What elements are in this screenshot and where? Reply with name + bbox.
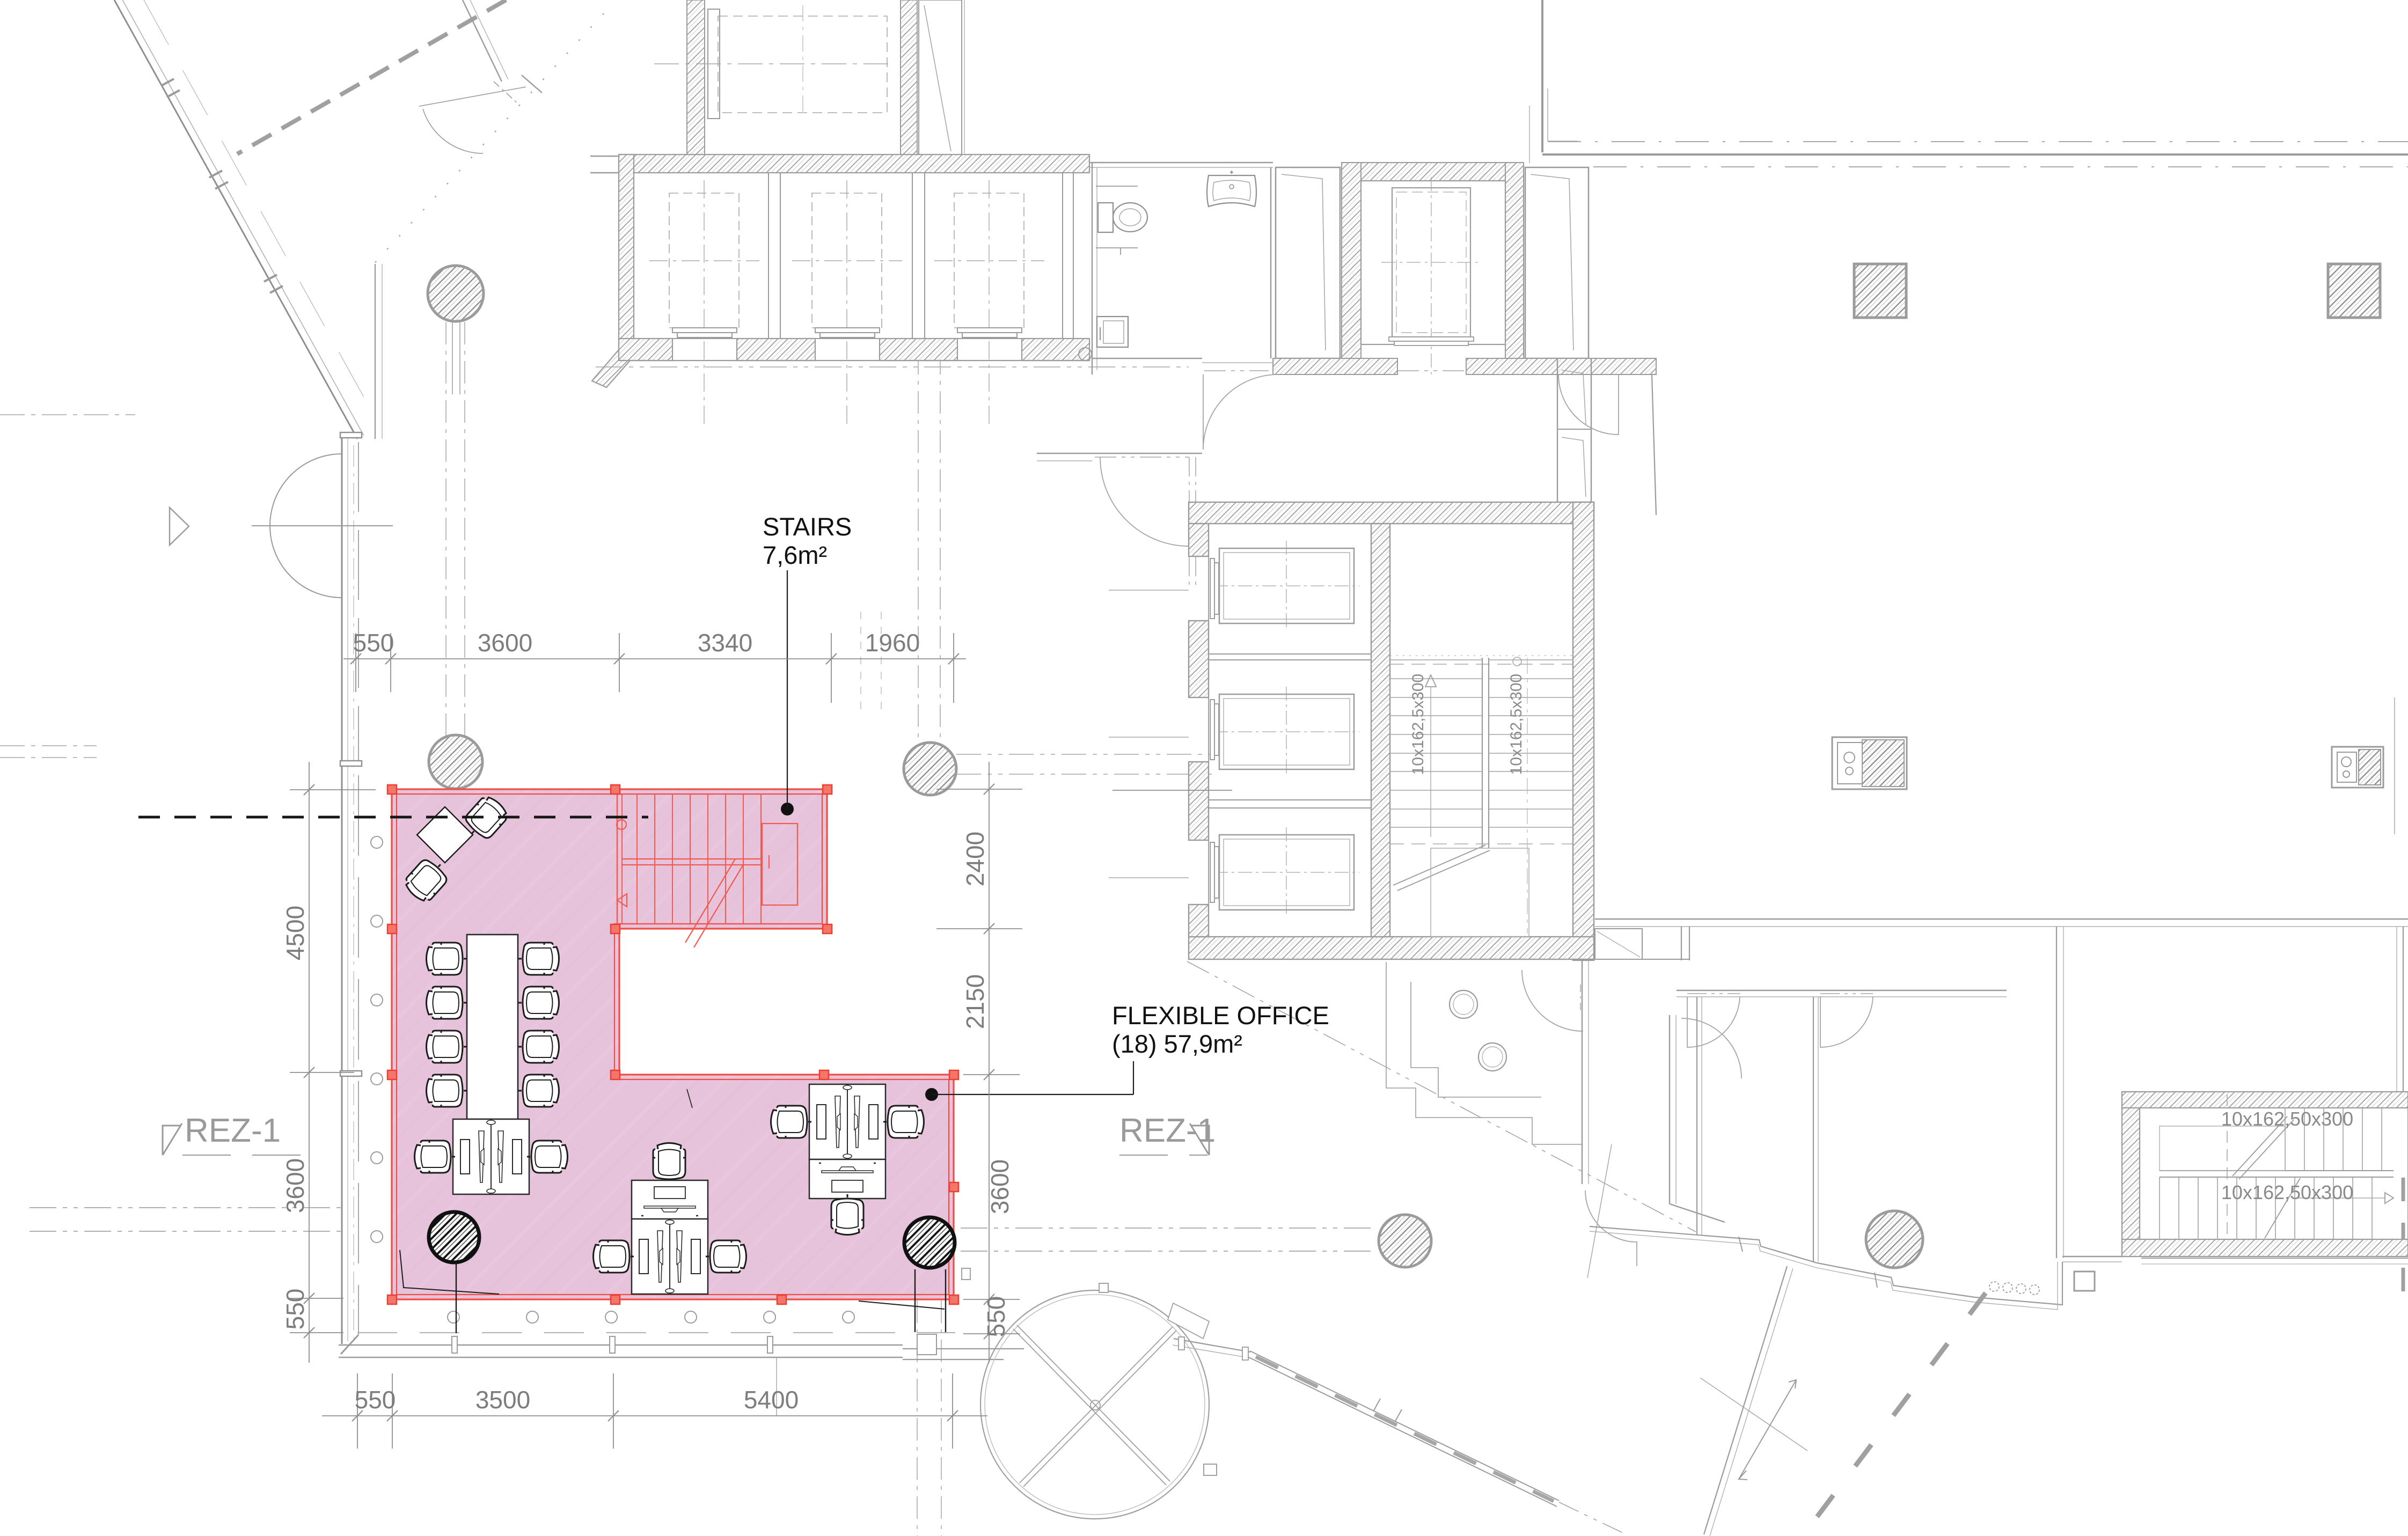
- svg-text:10x162,5x300: 10x162,5x300: [1409, 674, 1427, 775]
- svg-text:STAIRS: STAIRS: [763, 512, 852, 541]
- svg-text:2150: 2150: [961, 974, 989, 1029]
- svg-text:1960: 1960: [865, 629, 920, 657]
- svg-text:REZ-1: REZ-1: [185, 1112, 281, 1149]
- svg-text:FLEXIBLE OFFICE: FLEXIBLE OFFICE: [1112, 1001, 1329, 1030]
- svg-text:5400: 5400: [744, 1386, 799, 1414]
- svg-text:550: 550: [353, 629, 394, 657]
- svg-text:4500: 4500: [281, 906, 309, 960]
- svg-text:10x162,5x300: 10x162,5x300: [1507, 674, 1525, 775]
- svg-text:3340: 3340: [698, 629, 752, 657]
- svg-text:3600: 3600: [986, 1159, 1014, 1214]
- svg-text:10x162,50x300: 10x162,50x300: [2221, 1181, 2353, 1203]
- svg-text:3500: 3500: [475, 1386, 530, 1414]
- svg-text:3600: 3600: [281, 1158, 309, 1213]
- svg-text:(18) 57,9m²: (18) 57,9m²: [1112, 1030, 1242, 1058]
- svg-text:550: 550: [355, 1386, 396, 1414]
- svg-text:2400: 2400: [961, 832, 989, 886]
- svg-text:3600: 3600: [478, 629, 532, 657]
- svg-text:550: 550: [281, 1289, 309, 1330]
- svg-text:10x162,50x300: 10x162,50x300: [2221, 1108, 2353, 1130]
- svg-text:7,6m²: 7,6m²: [763, 541, 827, 569]
- svg-text:550: 550: [982, 1296, 1010, 1337]
